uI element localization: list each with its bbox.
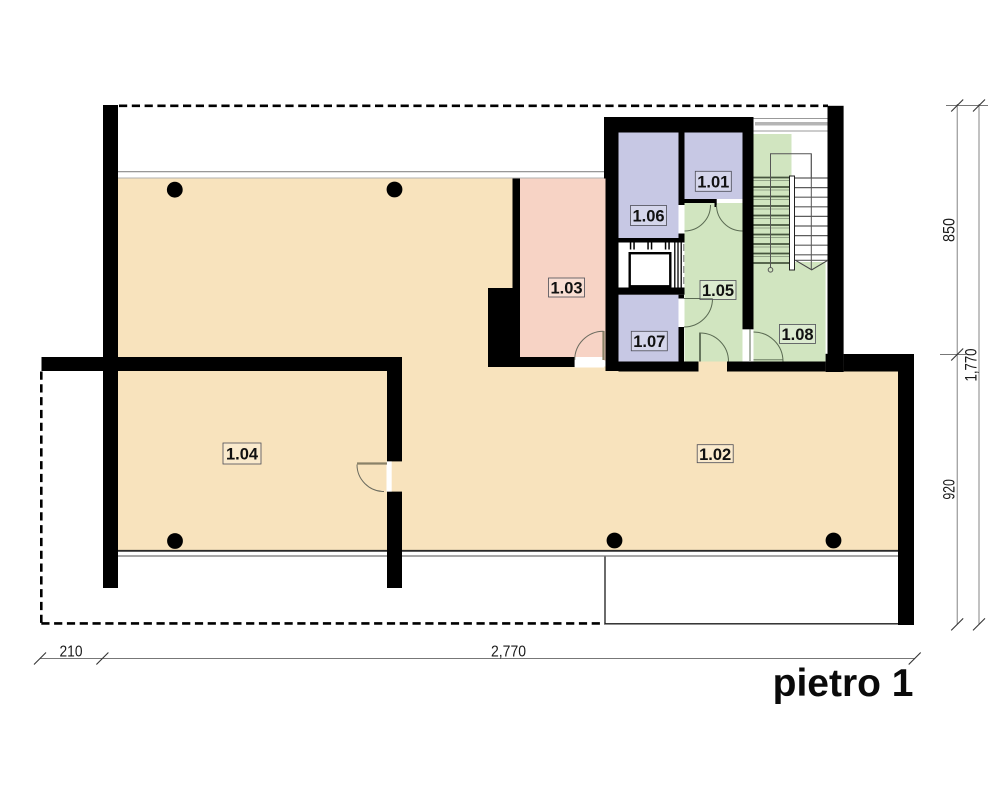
svg-text:1.07: 1.07	[633, 333, 665, 351]
svg-text:1.03: 1.03	[550, 280, 582, 298]
svg-text:pietro 1: pietro 1	[773, 662, 914, 705]
svg-text:1.08: 1.08	[781, 326, 813, 344]
svg-text:1.02: 1.02	[699, 446, 731, 464]
svg-text:1.05: 1.05	[702, 282, 734, 300]
svg-text:2,770: 2,770	[491, 644, 526, 661]
svg-text:1.06: 1.06	[632, 208, 664, 226]
svg-text:210: 210	[60, 644, 83, 661]
svg-text:1,770: 1,770	[963, 349, 981, 382]
svg-text:1.01: 1.01	[697, 174, 729, 192]
svg-text:1.04: 1.04	[226, 446, 259, 464]
svg-text:850: 850	[940, 218, 958, 242]
svg-text:920: 920	[940, 479, 958, 500]
